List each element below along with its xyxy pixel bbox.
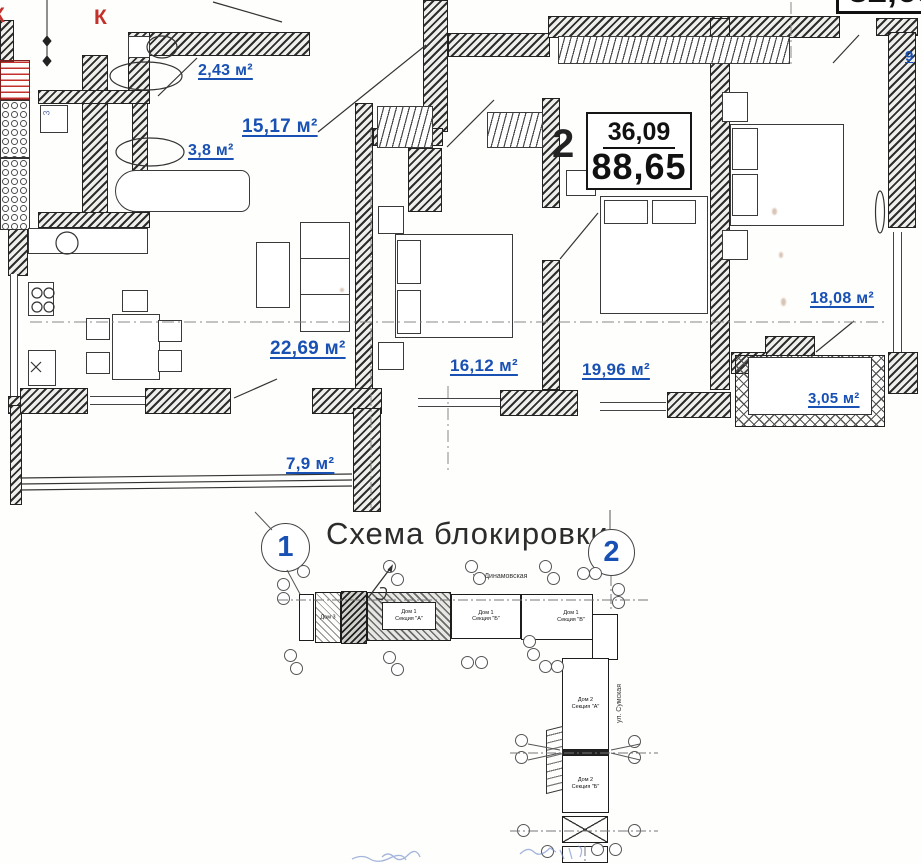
- floor-plan: К К 2,43 м² 3,8 м² 15,17 м² 22,69 м² 16,…: [0, 0, 921, 512]
- flat-number: 2: [552, 122, 574, 167]
- area-label-bedroom-2: 19,96 м²: [582, 360, 650, 380]
- area-label-loggia: 7,9 м²: [286, 454, 334, 474]
- scan-stain: [781, 298, 786, 306]
- north-arrow: [368, 566, 392, 599]
- area-label-kitchen: 22,69 м²: [270, 338, 346, 360]
- scheme-linework: [0, 510, 921, 863]
- area-label-hallway: 15,17 м²: [242, 116, 318, 138]
- red-k-mark: К: [94, 6, 107, 30]
- neighbor-label-fragment: 9: [905, 48, 913, 65]
- apartment-area-stamp: 36,09 88,65: [586, 112, 692, 190]
- area-label-balcony: 3,05 м²: [808, 390, 860, 407]
- red-k-mark: К: [0, 4, 5, 28]
- scanned-floor-plan-page: К К 2,43 м² 3,8 м² 15,17 м² 22,69 м² 16,…: [0, 0, 921, 863]
- total-area-value: 88,65: [588, 149, 690, 185]
- area-label-wc: 2,43 м²: [198, 62, 253, 80]
- area-label-bedroom-3: 18,08 м²: [810, 290, 874, 308]
- scan-stain: [772, 208, 777, 215]
- area-label-bedroom-1: 16,12 м²: [450, 356, 518, 376]
- blocking-scheme: Схема блокировки 1 2 ул. Динамовская ул.…: [0, 510, 921, 863]
- scan-stain: [340, 288, 344, 292]
- closet-number: 3: [42, 110, 52, 115]
- living-area-value: 36,09: [603, 117, 676, 149]
- area-label-bathroom: 3,8 м²: [188, 142, 234, 160]
- neighbor-area-stamp-partial: 82,65: [836, 0, 921, 14]
- handwriting: [352, 846, 582, 861]
- scan-stain: [779, 252, 783, 258]
